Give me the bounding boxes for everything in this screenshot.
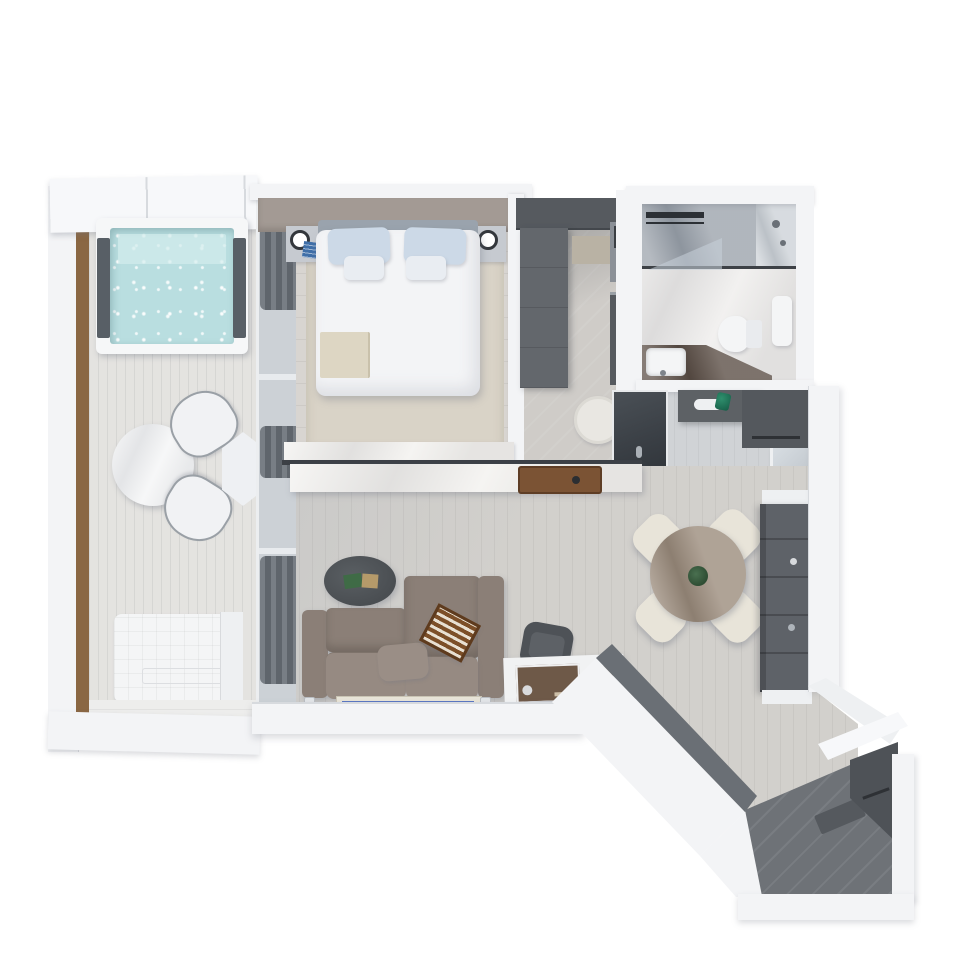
bathroom-wall-top — [626, 186, 814, 204]
round-dining-table — [650, 526, 746, 622]
lumbar-pillow — [377, 642, 430, 682]
living-wall-right — [808, 386, 839, 692]
shower-panel-right — [756, 204, 796, 268]
plant-centerpiece — [688, 566, 708, 586]
sink-faucet-icon — [660, 370, 666, 376]
towel-rail-icon — [646, 212, 704, 224]
lounger-seam — [142, 668, 232, 684]
floorplan-render — [0, 0, 960, 960]
toilet — [718, 314, 764, 354]
pillow-white-left — [344, 256, 384, 280]
shower-valve-icon — [780, 240, 786, 246]
living-wall-bottom — [252, 702, 584, 734]
speaker-knob-icon — [522, 685, 532, 695]
entry-wall-bottom — [738, 894, 914, 920]
sofa-right-arm — [478, 576, 504, 698]
remote-icon — [572, 476, 580, 484]
closet-shelf-box — [572, 236, 612, 264]
pool-water-step — [118, 234, 226, 264]
toilet-tank — [746, 320, 762, 348]
shower-fixture-icon — [772, 220, 780, 228]
bathroom-wall-left — [616, 190, 642, 396]
decor-book-green — [343, 573, 363, 589]
shelving-bracket-bottom — [762, 690, 812, 704]
oval-coffee-table — [324, 556, 396, 606]
balcony-outer-wall-left — [48, 186, 79, 752]
pool-pad-left — [97, 238, 110, 338]
wardrobe — [520, 228, 568, 388]
green-glass-vase — [714, 392, 731, 412]
pool-water — [110, 228, 234, 344]
shelf-decor-dot-1 — [790, 558, 797, 565]
lounger-side-ledge — [220, 612, 243, 708]
hand-shower-fixture — [772, 296, 792, 346]
marble-console-living-side — [290, 464, 642, 492]
shelving-unit — [760, 504, 812, 692]
pillow-white-right — [406, 256, 446, 280]
throw-blanket — [320, 332, 370, 378]
shelf-decor-dot-2 — [788, 624, 795, 631]
curtain-bottom — [260, 556, 302, 684]
door-handle-icon — [636, 446, 642, 458]
bathroom-wall-right — [796, 196, 814, 396]
entry-wall-right — [892, 754, 914, 902]
plunge-pool — [96, 218, 248, 354]
pool-pad-right — [233, 238, 246, 338]
drawer-slot — [752, 436, 800, 439]
balcony-outer-wall-bottom — [48, 711, 261, 755]
decor-book-tan — [362, 573, 379, 588]
hall-drawer-unit — [742, 390, 810, 448]
vanity-sink — [646, 348, 686, 376]
marble-console-bedroom-side — [284, 442, 514, 462]
double-bed — [316, 220, 480, 396]
sofa-left-arm — [302, 610, 328, 698]
leather-tray — [518, 466, 602, 494]
daybed-lounger — [114, 614, 236, 703]
table-lamp-right — [478, 230, 498, 250]
